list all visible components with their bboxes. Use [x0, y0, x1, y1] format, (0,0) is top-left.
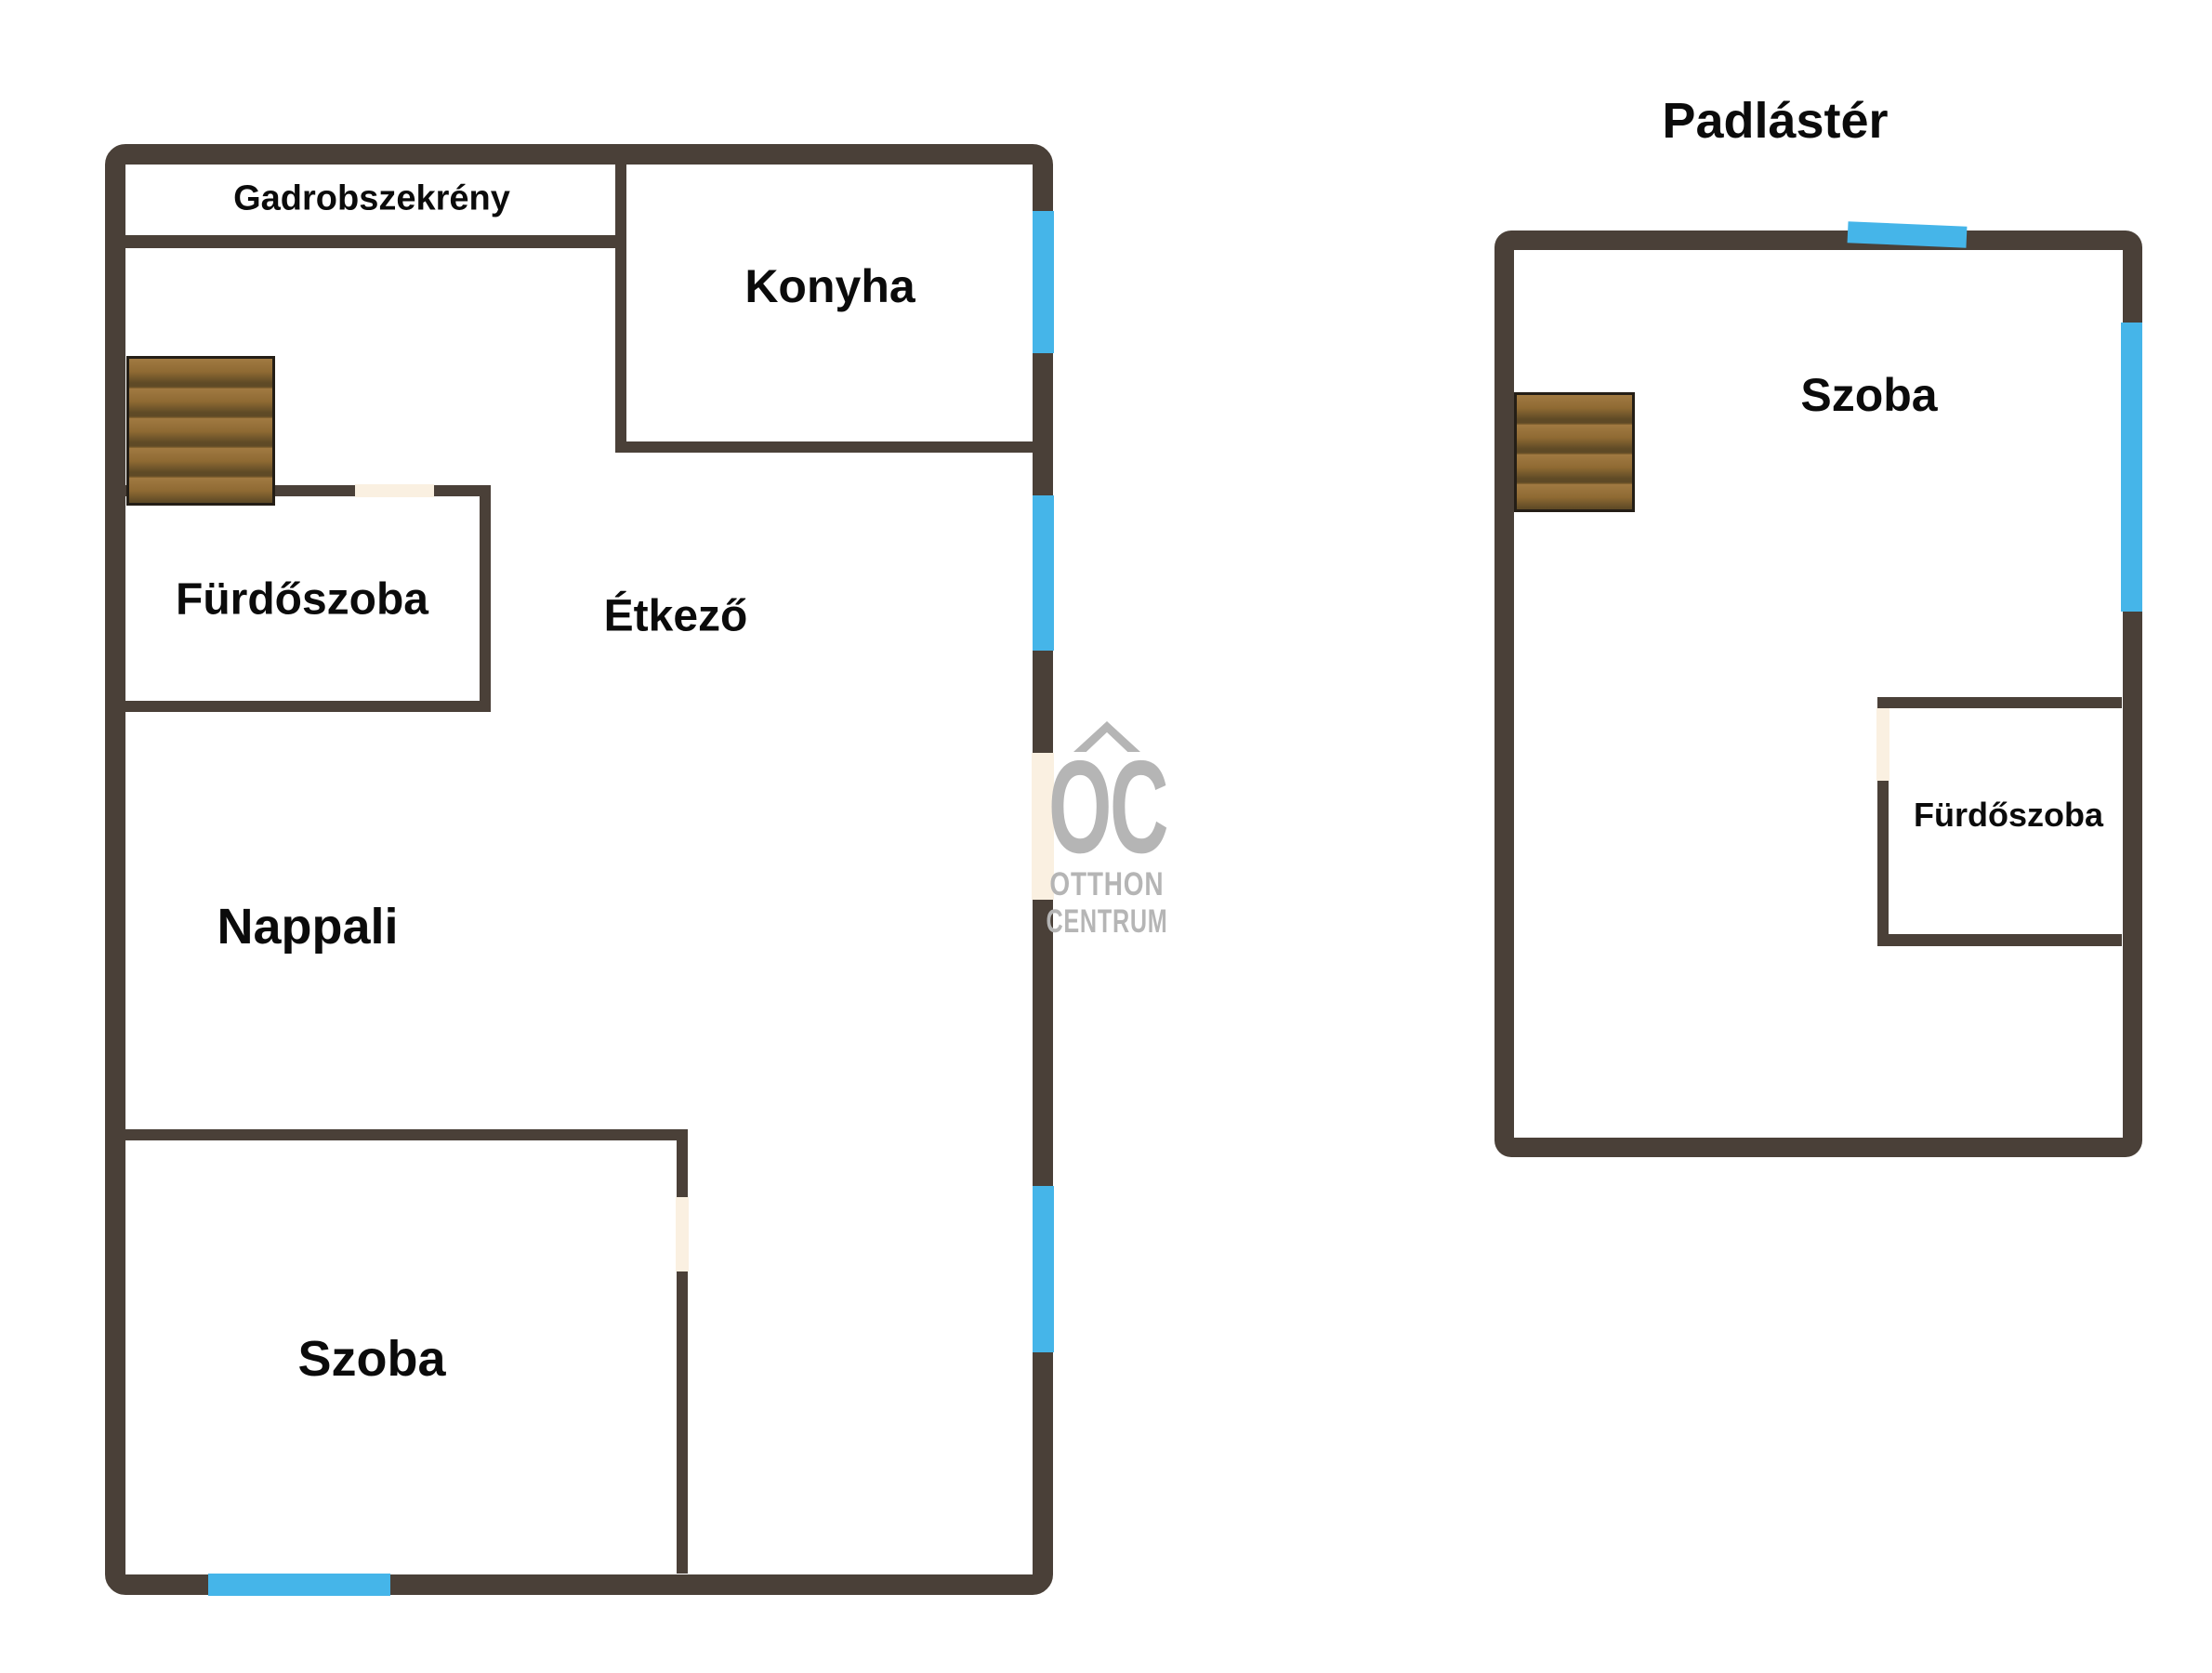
watermark-word-otthon: OTTHON — [1050, 868, 1165, 901]
label-room-ground: Szoba — [297, 1330, 445, 1388]
door-opening-room — [676, 1197, 689, 1271]
wall-bathroom-right — [480, 485, 491, 712]
floor-plan-canvas: Gadrobszekrény Konyha Fürdőszoba Étkező … — [0, 0, 2212, 1673]
stairs-ground — [126, 356, 275, 506]
watermark-monogram: OC — [1047, 757, 1165, 861]
label-living: Nappali — [217, 898, 398, 955]
door-opening-attic-bathroom — [1876, 708, 1889, 781]
stairs-attic — [1514, 392, 1635, 512]
wall-wardrobe-bottom — [125, 235, 626, 248]
wall-bathroom-bottom — [125, 701, 491, 712]
wall-room-right-lower — [677, 1271, 688, 1574]
otthon-centrum-watermark: OC OTTHON CENTRUM — [1039, 721, 1175, 938]
wall-attic-bathroom-top — [1877, 697, 2122, 708]
label-bathroom-ground: Fürdőszoba — [176, 574, 428, 626]
label-room-attic: Szoba — [1800, 368, 1937, 422]
label-bathroom-attic: Fürdőszoba — [1914, 796, 2103, 835]
wall-kitchen-left — [615, 165, 626, 453]
wall-room-right-upper — [677, 1129, 688, 1197]
attic-title: Padlástér — [1662, 92, 1888, 150]
window-room-bottom — [208, 1574, 390, 1596]
label-wardrobe: Gadrobszekrény — [233, 179, 510, 219]
window-dining — [1033, 495, 1054, 651]
door-opening-bathroom — [355, 484, 434, 497]
window-attic-right — [2121, 323, 2142, 612]
wall-attic-bathroom-left — [1877, 781, 1889, 946]
window-living — [1033, 1186, 1054, 1352]
window-kitchen — [1033, 211, 1054, 353]
wall-room-top — [125, 1129, 688, 1140]
watermark-word-centrum: CENTRUM — [1046, 905, 1167, 938]
wall-attic-bathroom-bottom — [1877, 934, 2122, 946]
label-kitchen: Konyha — [744, 259, 915, 313]
label-dining: Étkező — [604, 591, 748, 642]
wall-kitchen-bottom — [615, 441, 1034, 453]
